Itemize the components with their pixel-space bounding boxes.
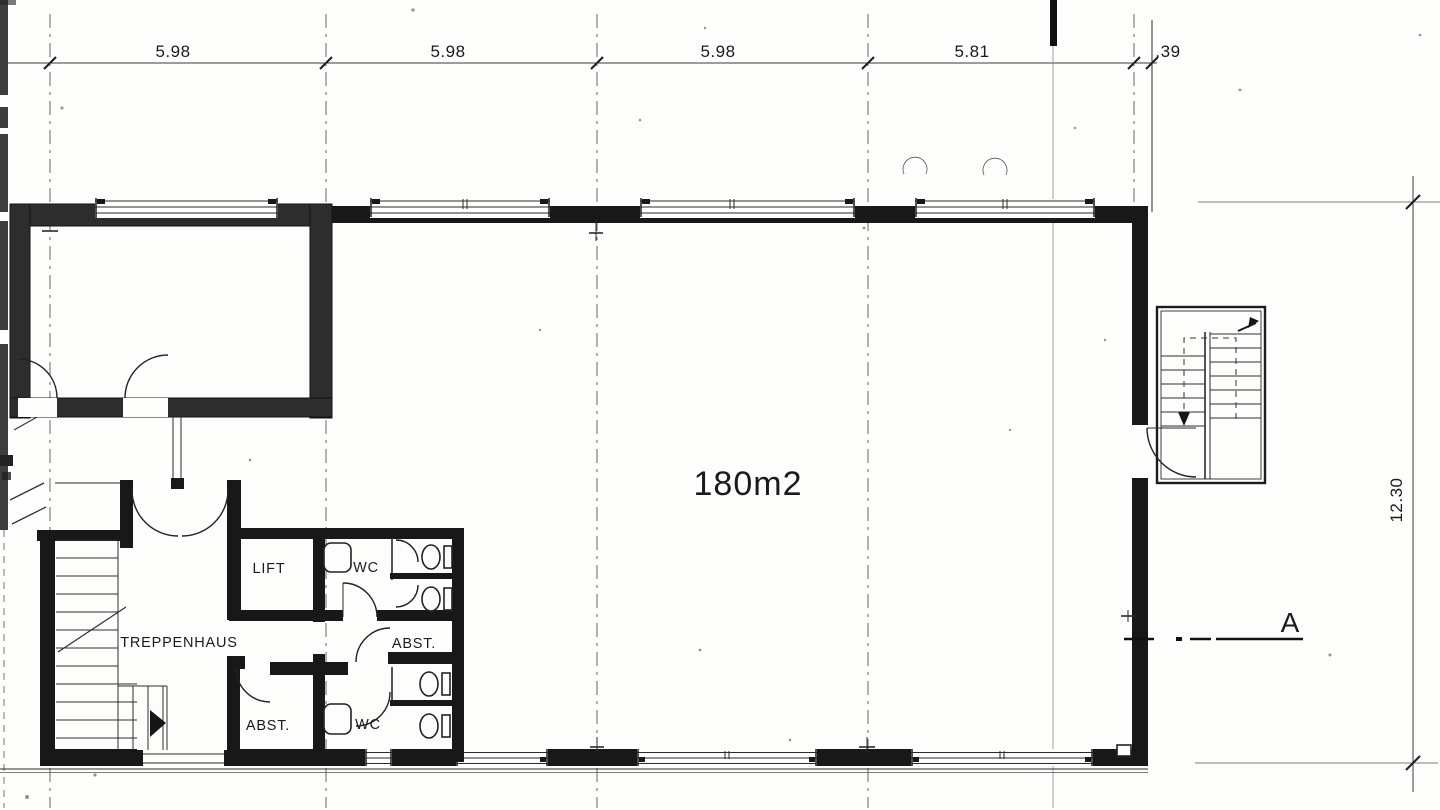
toilet: [420, 672, 438, 696]
room-wall-left: [10, 204, 30, 418]
toilet: [422, 587, 440, 611]
dimension-labels: 5.98 5.98 5.98 5.81 .39: [155, 42, 1180, 61]
dim-right-label: 12.30: [1387, 477, 1406, 522]
door-arc-abst-lower: [236, 668, 270, 702]
column-circle: [983, 158, 1007, 175]
stair-direction-arrow: [150, 710, 166, 737]
scan-mark-bar: [1050, 0, 1057, 46]
entrance-door-leaf-left: [132, 490, 178, 536]
section-marker: A: [1121, 607, 1303, 641]
core-block: LIFT WC ABST. TREPPENHAUS ABST. WC: [37, 528, 464, 762]
label-abst-lower: ABST.: [246, 718, 290, 734]
toilet: [422, 545, 440, 569]
top-dimension-chain: 5.98 5.98 5.98 5.81 .39: [6, 0, 1181, 69]
entrance-vestibule: [55, 414, 241, 620]
windows-top: [370, 198, 1095, 218]
label-wc-upper: WC: [353, 560, 379, 576]
label-lift: LIFT: [252, 561, 285, 577]
wall-right: [1132, 206, 1148, 758]
dim-top-2: 5.98: [430, 42, 465, 61]
room-top-left: [10, 198, 332, 418]
room-wall-bottom: [10, 398, 332, 417]
section-label: A: [1281, 607, 1300, 638]
label-wc-lower: WC: [355, 717, 381, 733]
dim-top-5: .39: [1155, 42, 1180, 61]
label-abst-upper: ABST.: [392, 636, 436, 652]
label-hall-area: 180m2: [694, 465, 803, 503]
floor-plan-canvas: 5.98 5.98 5.98 5.81 .39 12.30: [0, 0, 1440, 810]
entrance-door-leaf-right: [182, 490, 228, 536]
door-arc-wc-upper: [343, 583, 377, 617]
room-wall-right: [310, 204, 332, 418]
exterior-marks: [589, 157, 1007, 752]
radiator-symbol: [1117, 745, 1131, 756]
washbasin-lower: [324, 704, 351, 734]
door-arc-ext-stair: [1147, 428, 1196, 477]
door-arc-abst-upper: [356, 628, 390, 662]
stair-down-arrow: [1178, 412, 1190, 426]
toilet: [420, 714, 438, 738]
external-stair: [1147, 307, 1265, 483]
washbasin-upper: [324, 543, 351, 572]
dim-top-1: 5.98: [155, 42, 190, 61]
dim-top-3: 5.98: [700, 42, 735, 61]
column-circle: [903, 157, 927, 174]
dim-top-4: 5.81: [954, 42, 989, 61]
floor-plan-page: 5.98 5.98 5.98 5.81 .39 12.30: [0, 0, 1440, 810]
door-arc-room-right: [125, 355, 168, 398]
label-treppenhaus: TREPPENHAUS: [120, 635, 238, 651]
